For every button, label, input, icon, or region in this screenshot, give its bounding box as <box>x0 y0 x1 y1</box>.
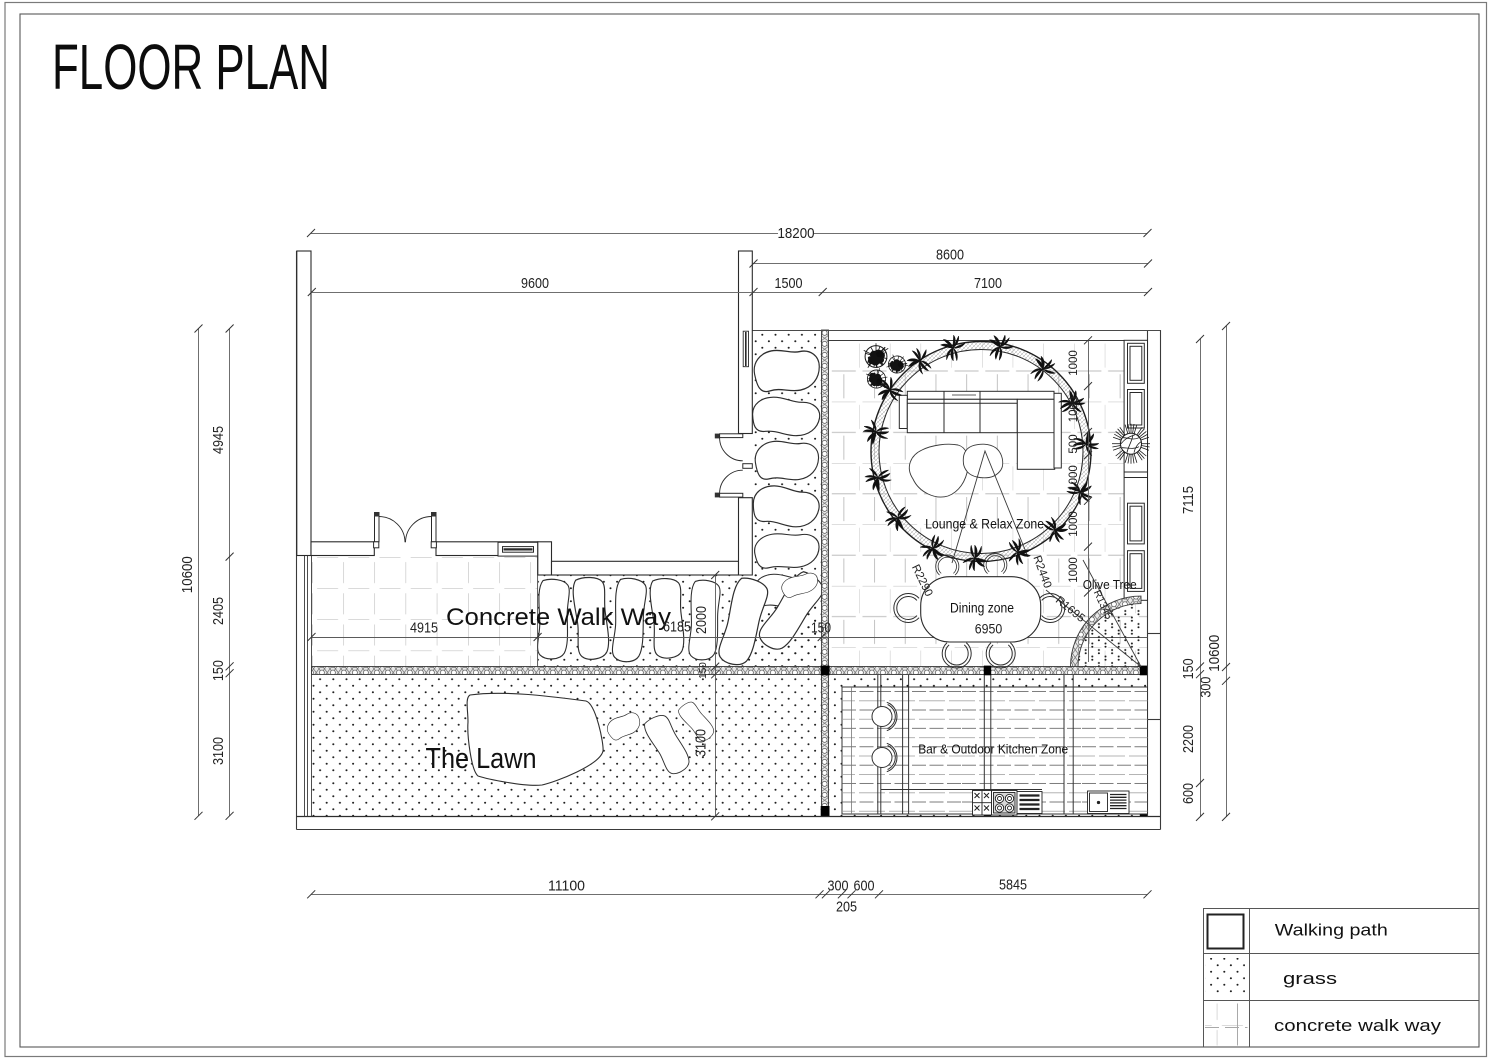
svg-text:1000: 1000 <box>1068 511 1080 537</box>
svg-text:1000: 1000 <box>1068 465 1080 491</box>
svg-text:grass: grass <box>1283 970 1337 988</box>
svg-text:10600: 10600 <box>179 556 196 593</box>
svg-text:150: 150 <box>210 660 227 681</box>
svg-text:18200: 18200 <box>778 225 815 242</box>
svg-text:1000: 1000 <box>1068 397 1080 423</box>
svg-text:1500: 1500 <box>775 275 803 292</box>
svg-text:6950: 6950 <box>975 620 1003 636</box>
svg-text:1000: 1000 <box>1068 557 1080 583</box>
svg-text:3100: 3100 <box>694 729 710 757</box>
svg-text:8600: 8600 <box>936 247 964 264</box>
svg-text:Walking path: Walking path <box>1275 922 1388 940</box>
svg-text:5845: 5845 <box>999 877 1027 894</box>
svg-text:600: 600 <box>854 878 875 895</box>
svg-text:150: 150 <box>698 662 709 679</box>
svg-text:300: 300 <box>828 878 849 895</box>
svg-text:Bar & Outdoor Kitchen Zone: Bar & Outdoor Kitchen Zone <box>918 742 1068 757</box>
svg-text:300: 300 <box>1198 677 1215 698</box>
svg-text:2405: 2405 <box>210 597 227 625</box>
svg-text:4945: 4945 <box>210 426 227 454</box>
svg-text:500: 500 <box>1068 434 1080 453</box>
svg-text:600: 600 <box>1180 783 1197 804</box>
svg-text:Lounge & Relax Zone: Lounge & Relax Zone <box>925 517 1044 532</box>
svg-text:concrete walk way: concrete walk way <box>1274 1017 1442 1035</box>
svg-text:Dining zone: Dining zone <box>950 600 1014 616</box>
svg-text:2000: 2000 <box>694 606 710 634</box>
svg-text:7100: 7100 <box>974 275 1002 292</box>
svg-text:205: 205 <box>836 899 857 916</box>
svg-text:9600: 9600 <box>521 275 549 292</box>
svg-text:11100: 11100 <box>548 878 585 895</box>
svg-text:4915: 4915 <box>410 621 438 637</box>
svg-text:7115: 7115 <box>1180 486 1197 514</box>
svg-text:2200: 2200 <box>1180 725 1197 753</box>
svg-text:10600: 10600 <box>1206 635 1223 672</box>
svg-text:3100: 3100 <box>210 737 227 765</box>
svg-text:1000: 1000 <box>1068 350 1080 376</box>
svg-text:The Lawn: The Lawn <box>426 743 537 775</box>
svg-text:6185: 6185 <box>663 620 691 636</box>
svg-text:150: 150 <box>811 621 831 637</box>
svg-text:150: 150 <box>1180 658 1197 679</box>
svg-text:FLOOR PLAN: FLOOR PLAN <box>52 31 330 103</box>
svg-text:Concrete Walk Way: Concrete Walk Way <box>446 604 672 631</box>
